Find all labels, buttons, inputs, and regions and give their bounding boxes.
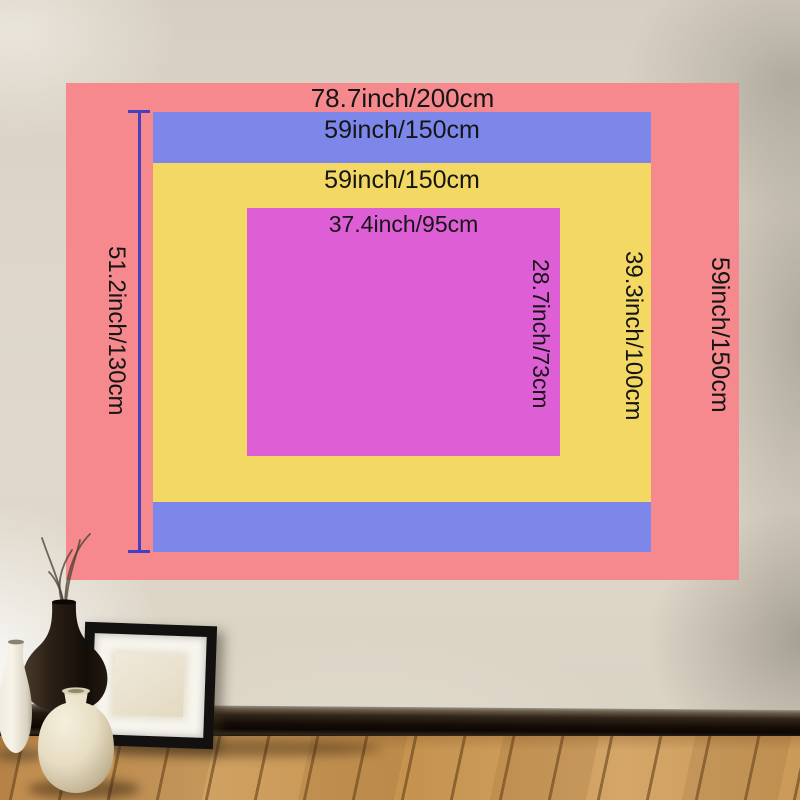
twig-branch	[65, 534, 90, 606]
dark-vase-opening	[52, 599, 76, 604]
inner-width-label: 37.4inch/95cm	[247, 210, 560, 239]
outer-width-label: 78.7inch/200cm	[66, 84, 739, 113]
measure-stem	[138, 110, 141, 553]
round-vase-body	[38, 691, 114, 793]
tapestry-size-chart-photo: 78.7inch/200cm 59inch/150cm 59inch/150cm…	[0, 0, 800, 800]
band-width-label: 59inch/150cm	[153, 116, 651, 145]
tall-vase-opening	[8, 640, 24, 645]
inner-height-label: 28.7inch/73cm	[527, 259, 555, 409]
round-cream-vase	[26, 686, 126, 798]
band-height-label: 51.2inch/130cm	[102, 246, 130, 415]
outer-height-label: 59inch/150cm	[706, 257, 734, 413]
middle-height-label: 39.3inch/100cm	[619, 251, 647, 420]
middle-width-label: 59inch/150cm	[153, 166, 651, 195]
twig-branches	[42, 534, 90, 607]
size-rect-inner-73cm	[247, 208, 560, 456]
round-vase-opening	[68, 689, 84, 693]
height-measure-line	[128, 110, 150, 553]
